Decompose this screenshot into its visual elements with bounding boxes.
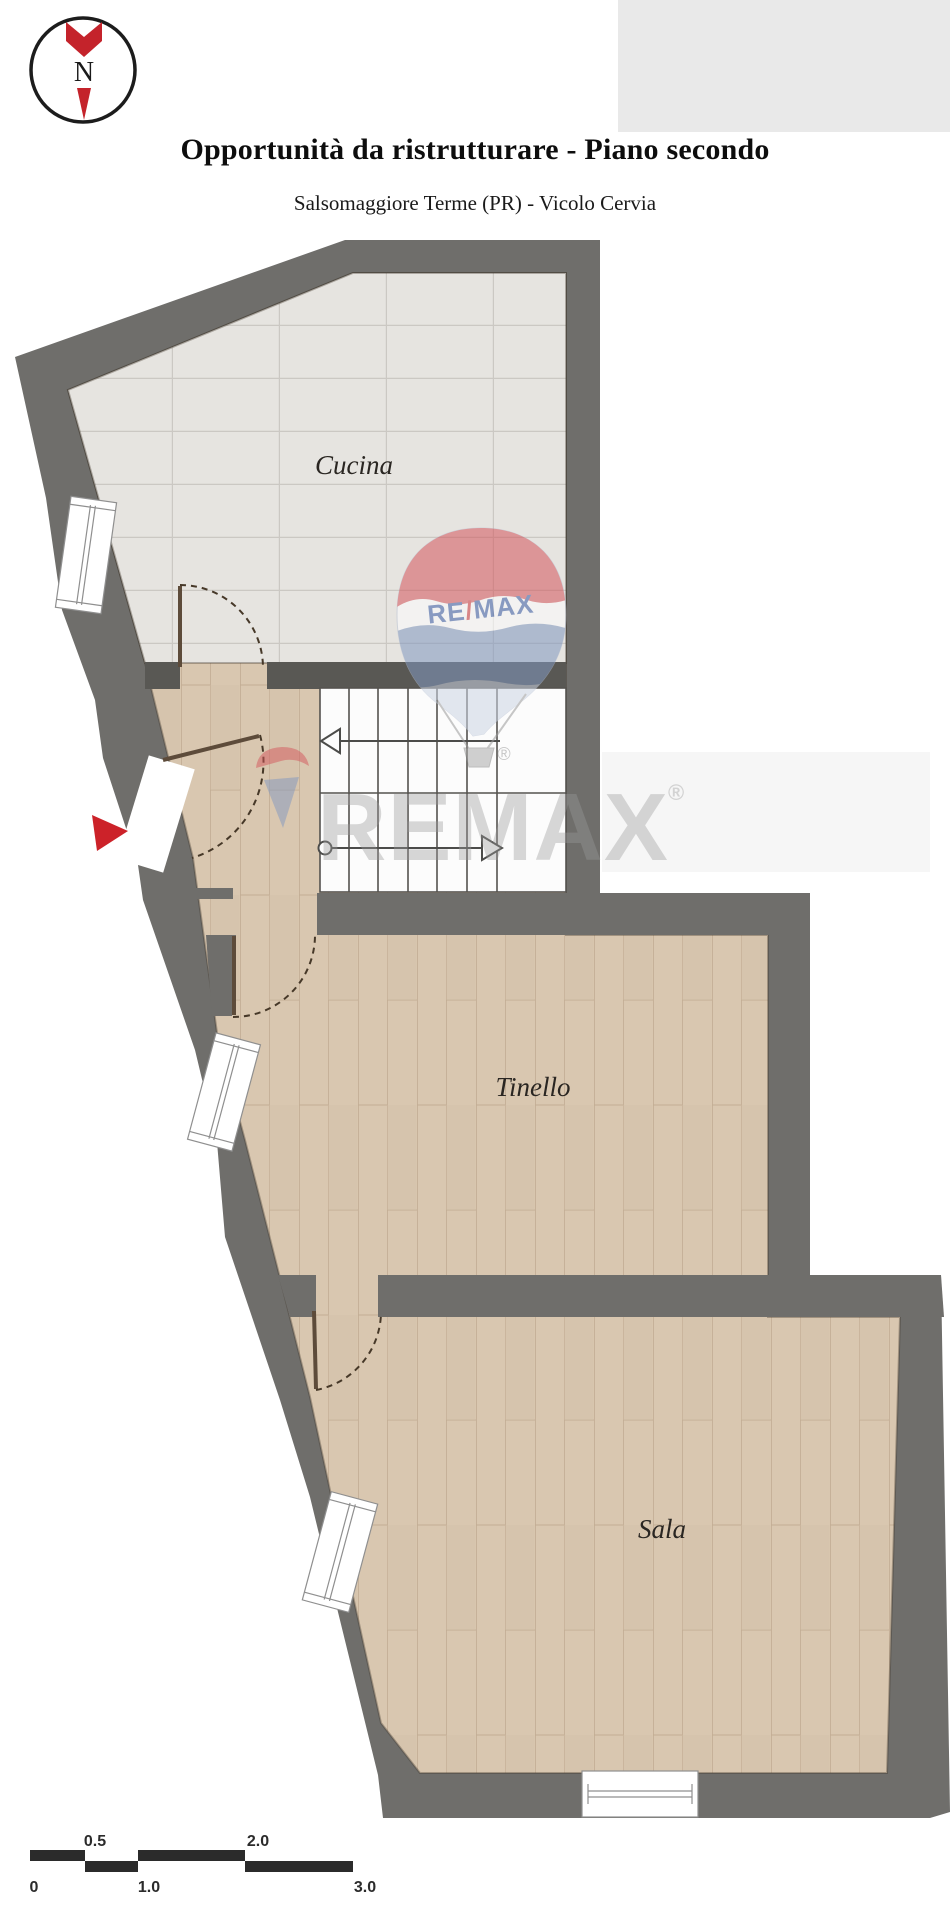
window-sala-bottom bbox=[582, 1771, 698, 1817]
remax-watermark-registered-mark: ® bbox=[668, 780, 684, 805]
sala-door-leaf bbox=[314, 1311, 316, 1389]
scale-label-05: 0.5 bbox=[84, 1833, 106, 1850]
room-label-sala: Sala bbox=[638, 1514, 686, 1544]
compass-north-letter: N bbox=[74, 57, 94, 88]
scale-label-10: 1.0 bbox=[138, 1879, 160, 1896]
sala-top-wall bbox=[378, 1275, 944, 1317]
scale-label-30: 3.0 bbox=[354, 1879, 376, 1896]
scale-bar: 0.5 2.0 0 1.0 3.0 bbox=[30, 1833, 377, 1896]
room-label-tinello: Tinello bbox=[495, 1072, 570, 1102]
balloon-registered-mark: ® bbox=[497, 744, 510, 764]
scale-label-0: 0 bbox=[30, 1879, 39, 1896]
floorplan-drawing: RE/MAX ® REMAX ® Cucina Tinello Sala N bbox=[0, 0, 950, 1920]
tinello-top-wall bbox=[317, 893, 810, 935]
remax-text-watermark: REMAX bbox=[317, 774, 669, 881]
corridor-wall-stub bbox=[186, 888, 233, 899]
floorplan-page: Opportunità da ristrutturare - Piano sec… bbox=[0, 0, 950, 1920]
room-label-cucina: Cucina bbox=[315, 450, 393, 480]
scale-label-20: 2.0 bbox=[247, 1833, 269, 1850]
compass-north-icon: N bbox=[31, 18, 135, 122]
